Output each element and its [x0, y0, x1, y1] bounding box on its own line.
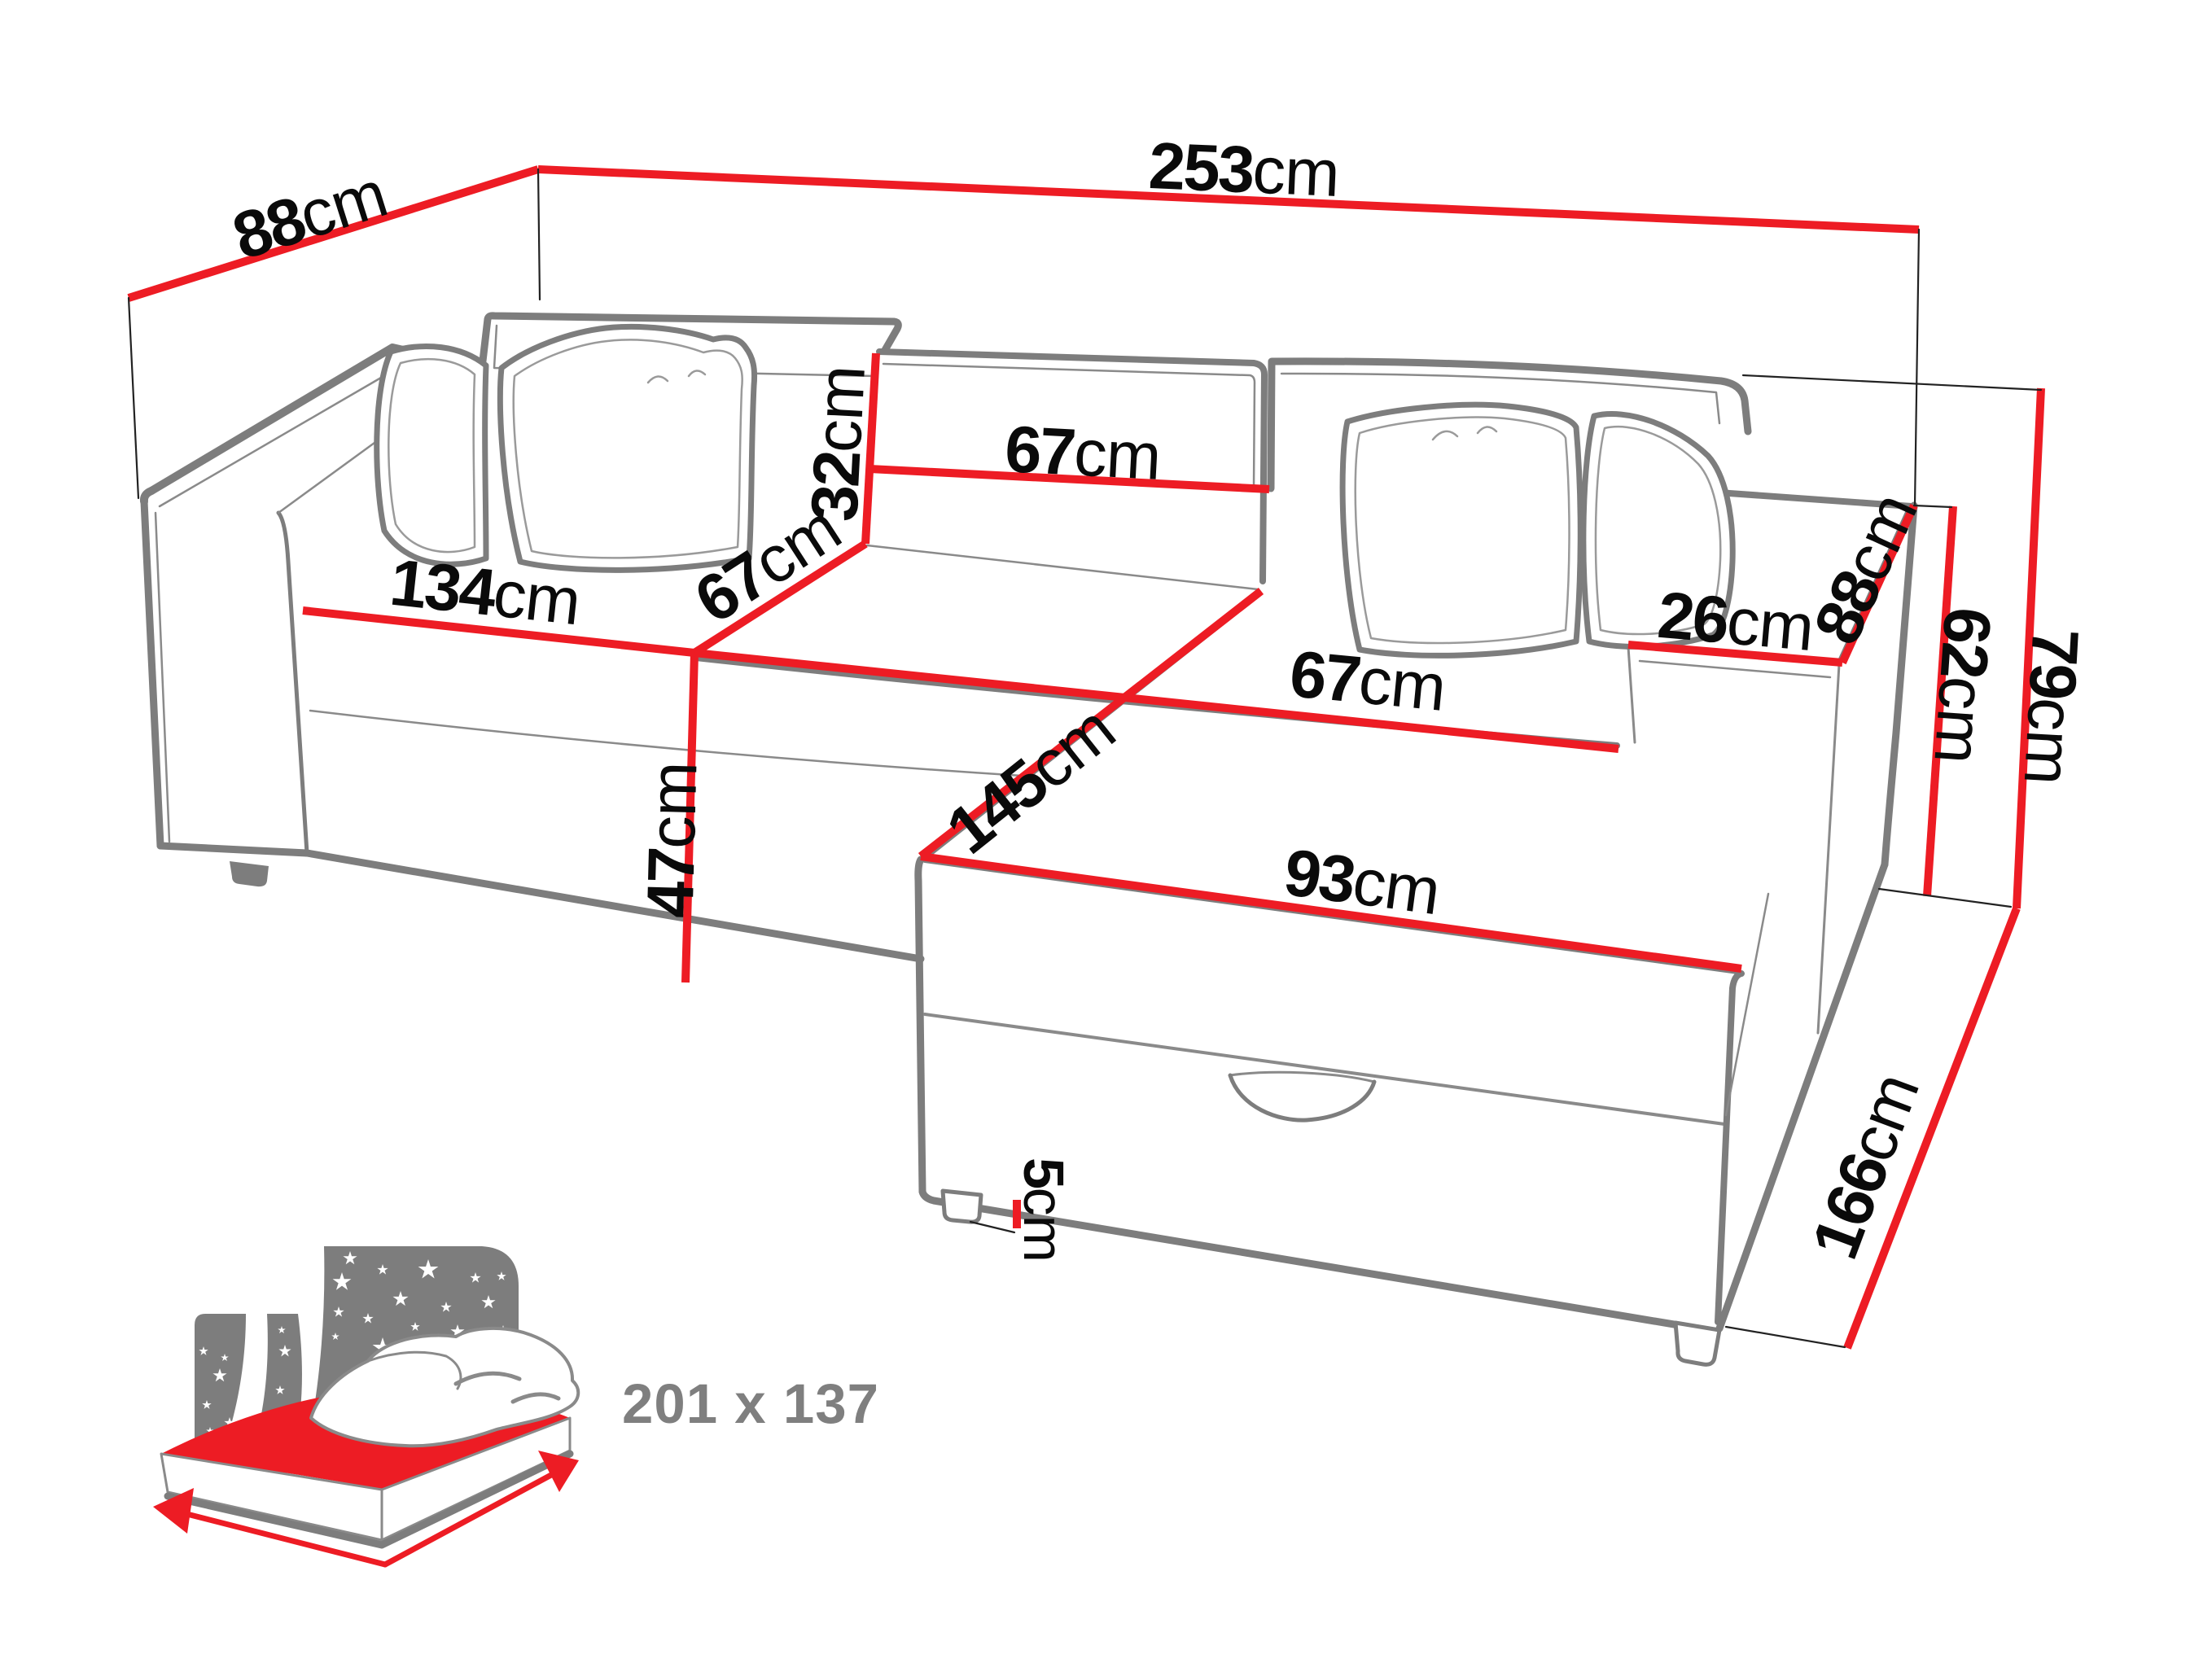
svg-text:67cm: 67cm — [1286, 637, 1448, 725]
svg-text:253cm: 253cm — [1147, 129, 1340, 211]
svg-text:26cm: 26cm — [1655, 579, 1816, 665]
svg-text:47cm: 47cm — [634, 761, 712, 918]
svg-text:79cm: 79cm — [2010, 627, 2092, 786]
svg-text:201 x 137: 201 x 137 — [622, 1372, 879, 1435]
svg-text:67cm: 67cm — [1003, 413, 1163, 494]
svg-text:62cm: 62cm — [1920, 605, 2004, 765]
svg-text:5cm: 5cm — [1012, 1158, 1075, 1262]
